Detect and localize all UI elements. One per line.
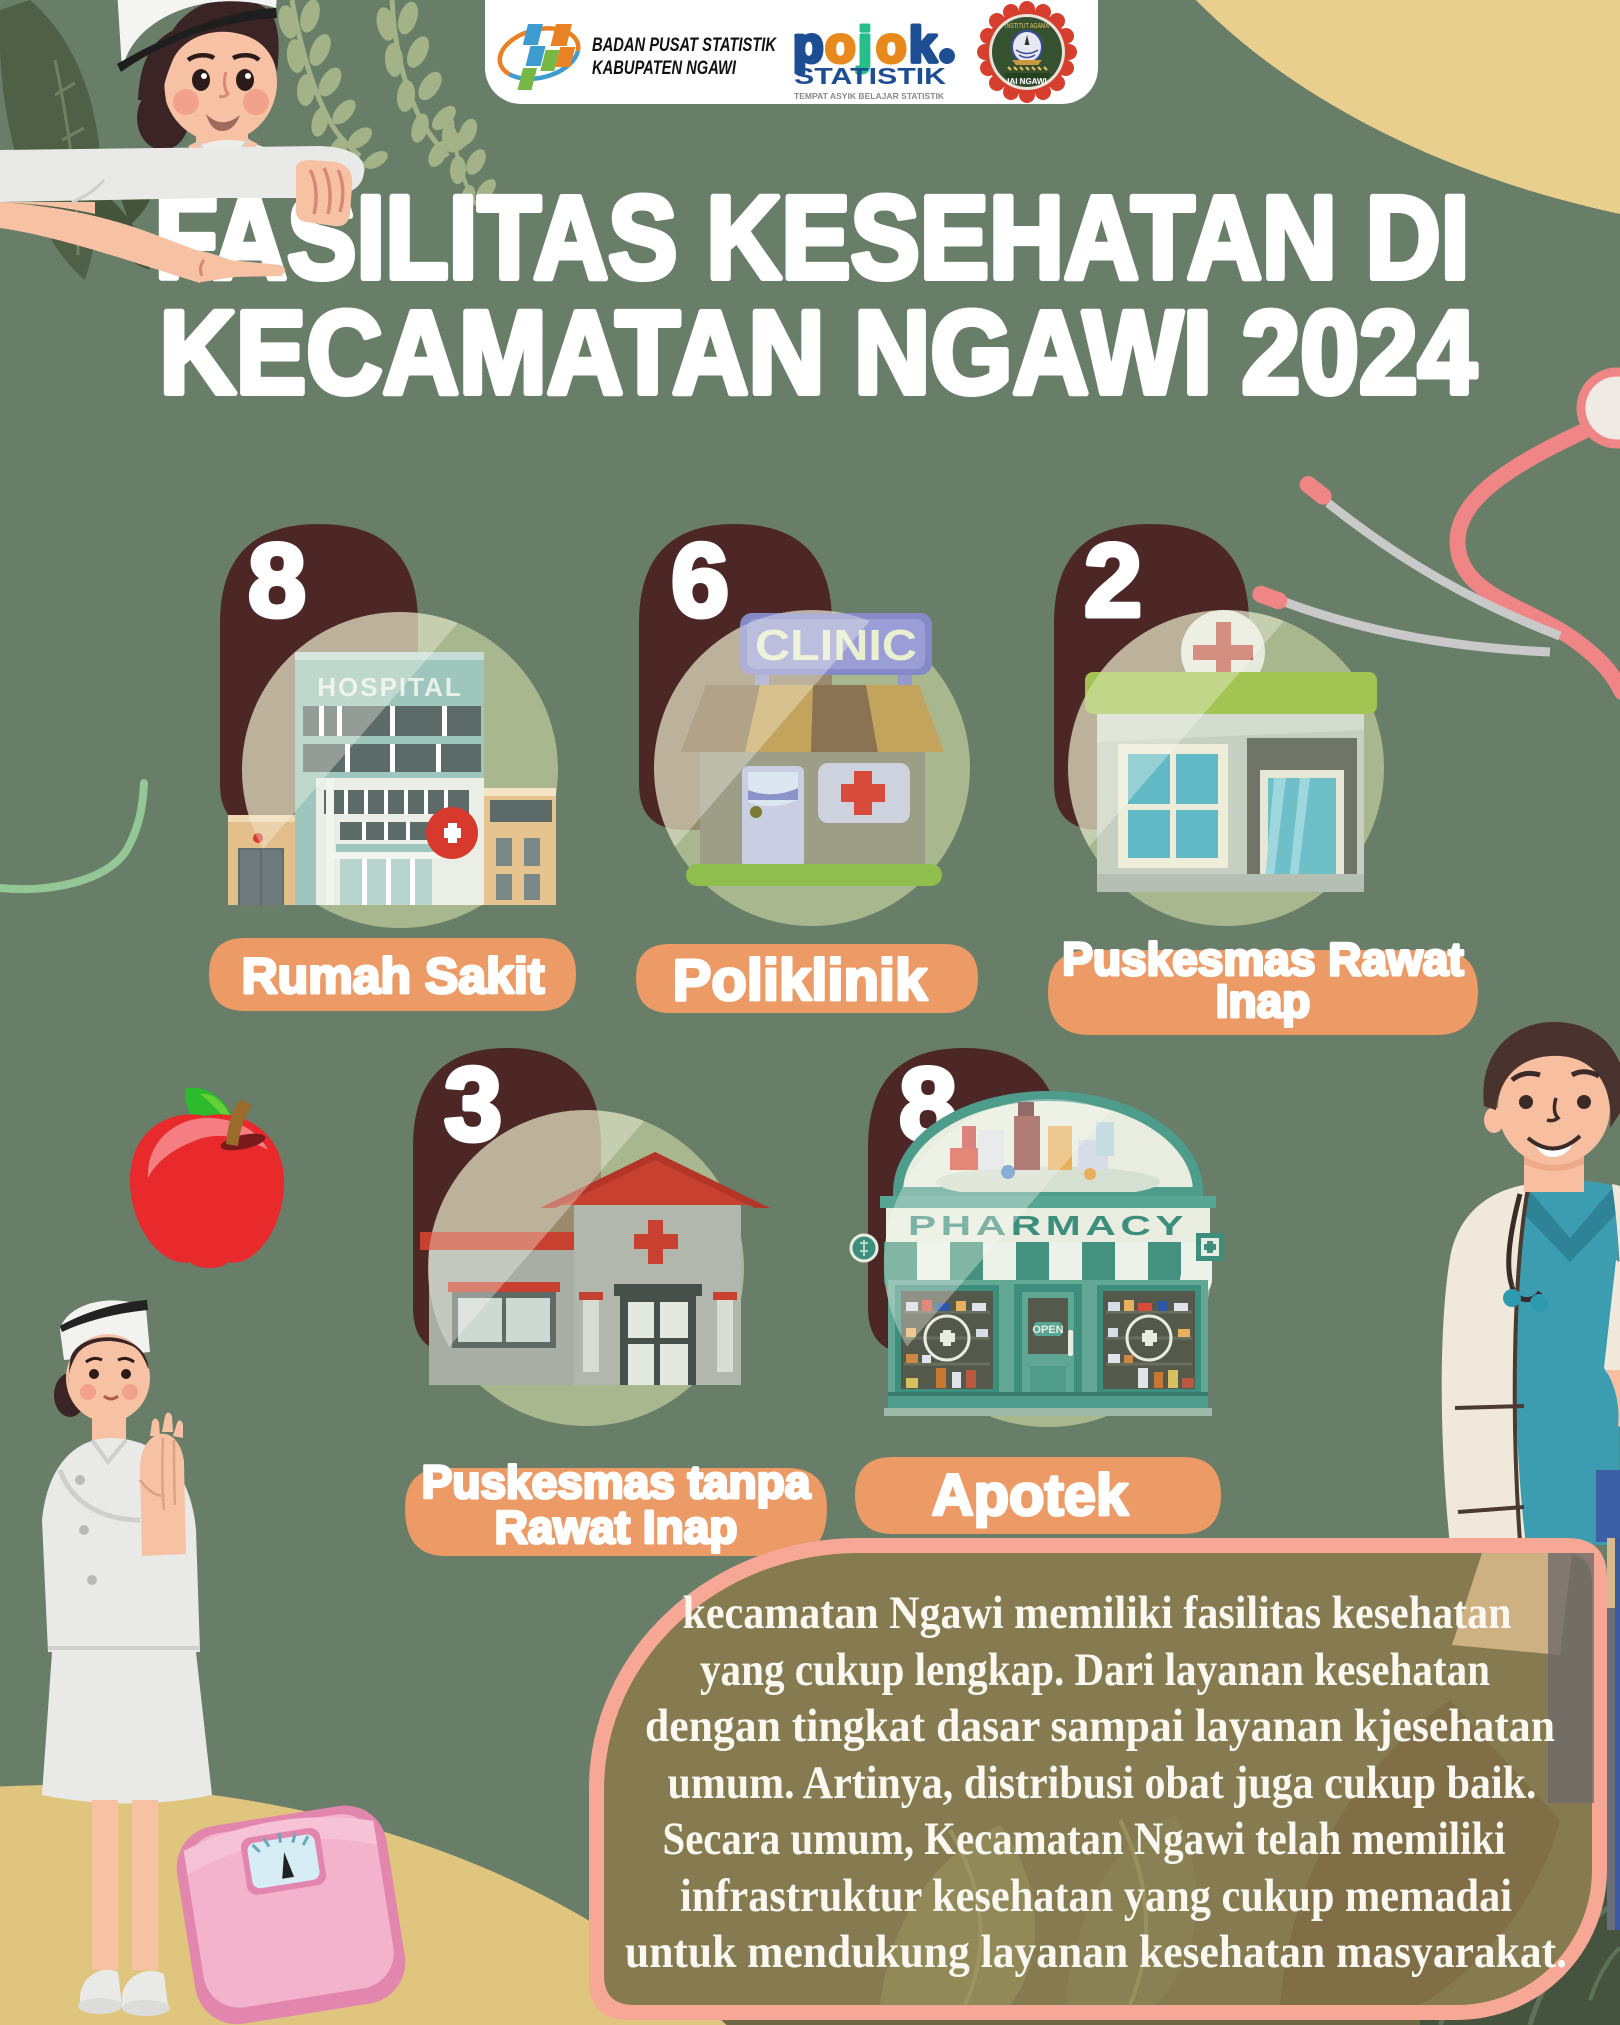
svg-text:8: 8 <box>248 523 306 639</box>
svg-text:IAI NGAWI: IAI NGAWI <box>1007 77 1047 86</box>
svg-text:TEMPAT ASYIK BELAJAR STATISTIK: TEMPAT ASYIK BELAJAR STATISTIK <box>794 91 945 101</box>
svg-text:Rawat Inap: Rawat Inap <box>495 1501 738 1553</box>
svg-text:untuk mendukung layanan keseha: untuk mendukung layanan kesehatan masyar… <box>625 1926 1567 1978</box>
svg-text:umum. Artinya, distribusi obat: umum. Artinya, distribusi obat juga cuku… <box>668 1757 1537 1809</box>
svg-text:6: 6 <box>671 523 729 639</box>
svg-text:2: 2 <box>1084 523 1142 639</box>
svg-text:Apotek: Apotek <box>932 1463 1129 1528</box>
svg-text:Inap: Inap <box>1216 975 1311 1027</box>
svg-text:BADAN PUSAT STATISTIK: BADAN PUSAT STATISTIK <box>592 35 777 56</box>
svg-text:FASILITAS KESEHATAN DI: FASILITAS KESEHATAN DI <box>155 172 1470 304</box>
svg-text:KABUPATEN NGAWI: KABUPATEN NGAWI <box>592 58 737 79</box>
svg-text:STATISTIK: STATISTIK <box>794 63 947 89</box>
svg-text:Secara umum, Kecamatan Ngawi t: Secara umum, Kecamatan Ngawi telah memil… <box>663 1813 1506 1865</box>
svg-text:Poliklinik: Poliklinik <box>673 948 928 1013</box>
svg-text:dengan tingkat dasar sampai la: dengan tingkat dasar sampai layanan kjes… <box>645 1700 1555 1752</box>
svg-text:yang cukup lengkap. Dari layan: yang cukup lengkap. Dari layanan kesehat… <box>700 1644 1490 1696</box>
svg-text:KECAMATAN NGAWI 2024: KECAMATAN NGAWI 2024 <box>160 287 1477 419</box>
svg-text:INSTITUT AGAMA: INSTITUT AGAMA <box>1005 23 1049 30</box>
svg-text:kecamatan Ngawi memiliki fasil: kecamatan Ngawi memiliki fasilitas keseh… <box>683 1587 1512 1639</box>
svg-text:OPEN: OPEN <box>1032 1324 1063 1336</box>
svg-text:Rumah Sakit: Rumah Sakit <box>242 948 545 1004</box>
svg-text:infrastruktur kesehatan yang c: infrastruktur kesehatan yang cukup memad… <box>680 1870 1512 1922</box>
